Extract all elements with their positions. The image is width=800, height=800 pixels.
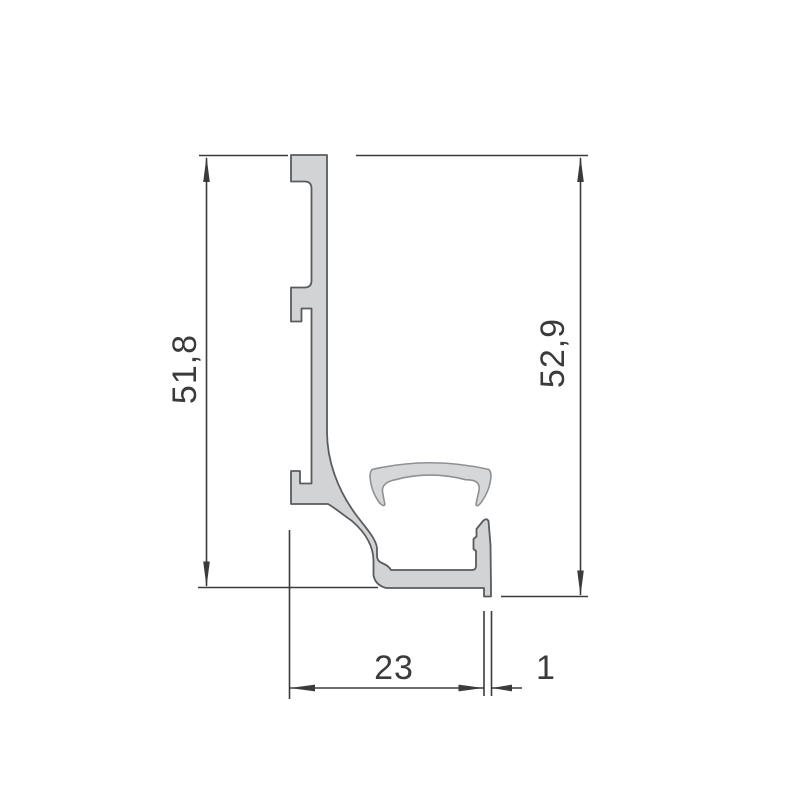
dimension-foot-thickness: 1: [492, 649, 556, 691]
arrow-down-icon: [577, 571, 584, 597]
arrow-up-icon: [203, 157, 210, 183]
arrow-down-icon: [203, 562, 210, 588]
arrow-right-icon: [459, 685, 484, 692]
dimension-right-height: 52,9: [534, 157, 584, 597]
dim-left-height-label: 51,8: [166, 334, 204, 404]
arrow-left-icon: [290, 685, 315, 692]
dimension-base-width: 23: [290, 649, 484, 691]
profile-group: [291, 155, 491, 597]
dim-right-height-label: 52,9: [534, 318, 572, 388]
dim-foot-thickness-label: 1: [536, 649, 556, 687]
technical-drawing-canvas: 51,8 52,9 23 1: [0, 0, 800, 800]
profile-outline: [291, 155, 491, 597]
dim-base-width-label: 23: [374, 649, 414, 687]
dimension-left-height: 51,8: [166, 157, 210, 588]
drawing-stage: 51,8 52,9 23 1: [0, 0, 800, 800]
arrow-left-icon: [492, 685, 512, 692]
clip-insert-outline: [370, 463, 491, 506]
dimension-annotations: 51,8 52,9 23 1: [166, 156, 588, 700]
arrow-up-icon: [577, 157, 584, 183]
